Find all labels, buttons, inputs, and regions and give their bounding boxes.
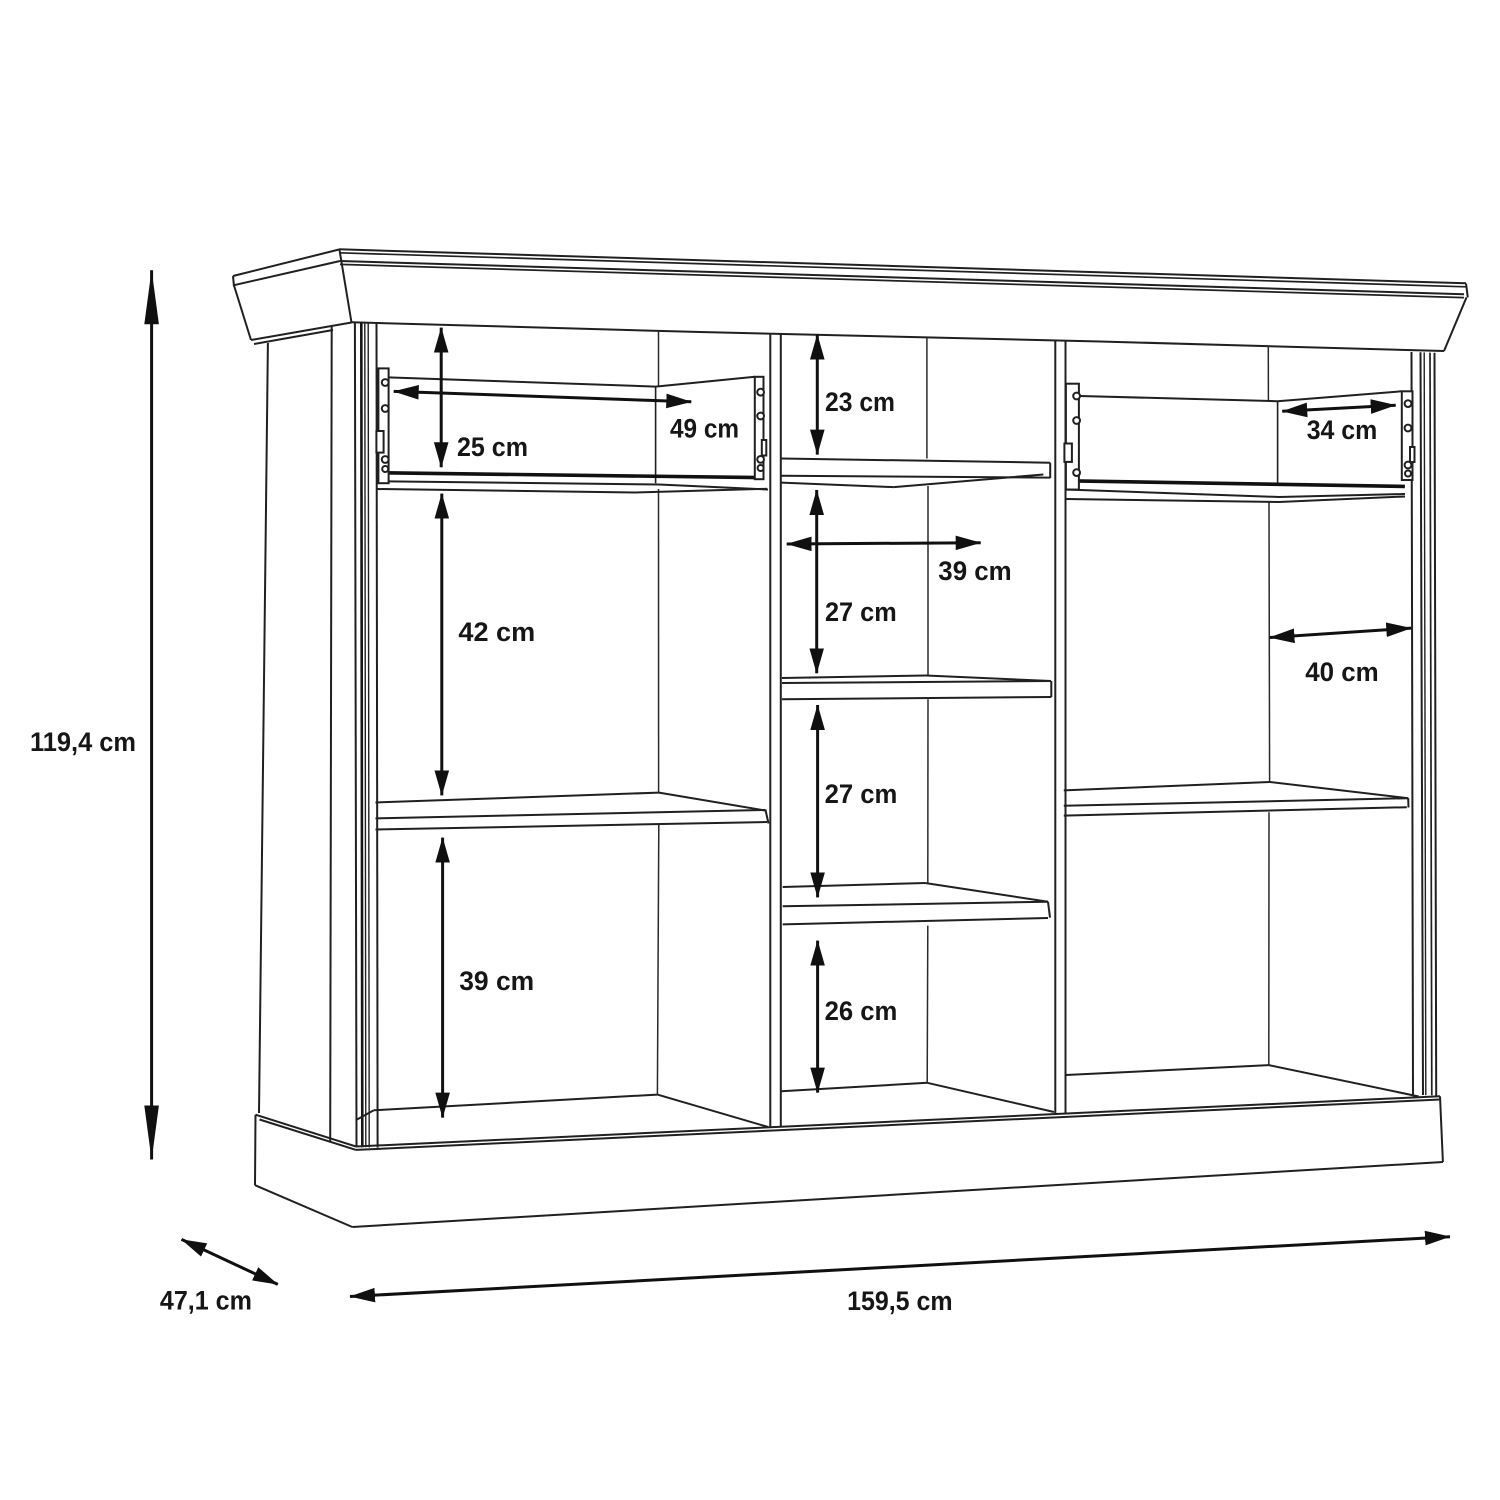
svg-text:39 cm: 39 cm	[938, 556, 1011, 586]
svg-text:40 cm: 40 cm	[1305, 657, 1379, 687]
svg-text:159,5 cm: 159,5 cm	[847, 1286, 952, 1316]
svg-text:26 cm: 26 cm	[825, 996, 898, 1026]
svg-text:42 cm: 42 cm	[458, 617, 535, 647]
svg-text:47,1 cm: 47,1 cm	[160, 1286, 252, 1316]
svg-text:39 cm: 39 cm	[459, 966, 534, 996]
svg-text:49 cm: 49 cm	[670, 414, 739, 444]
svg-text:27 cm: 27 cm	[825, 779, 898, 809]
svg-text:119,4 cm: 119,4 cm	[30, 727, 136, 757]
svg-text:27 cm: 27 cm	[825, 597, 897, 627]
svg-text:34 cm: 34 cm	[1307, 415, 1378, 445]
svg-text:23 cm: 23 cm	[825, 387, 895, 417]
svg-text:25 cm: 25 cm	[457, 432, 528, 462]
